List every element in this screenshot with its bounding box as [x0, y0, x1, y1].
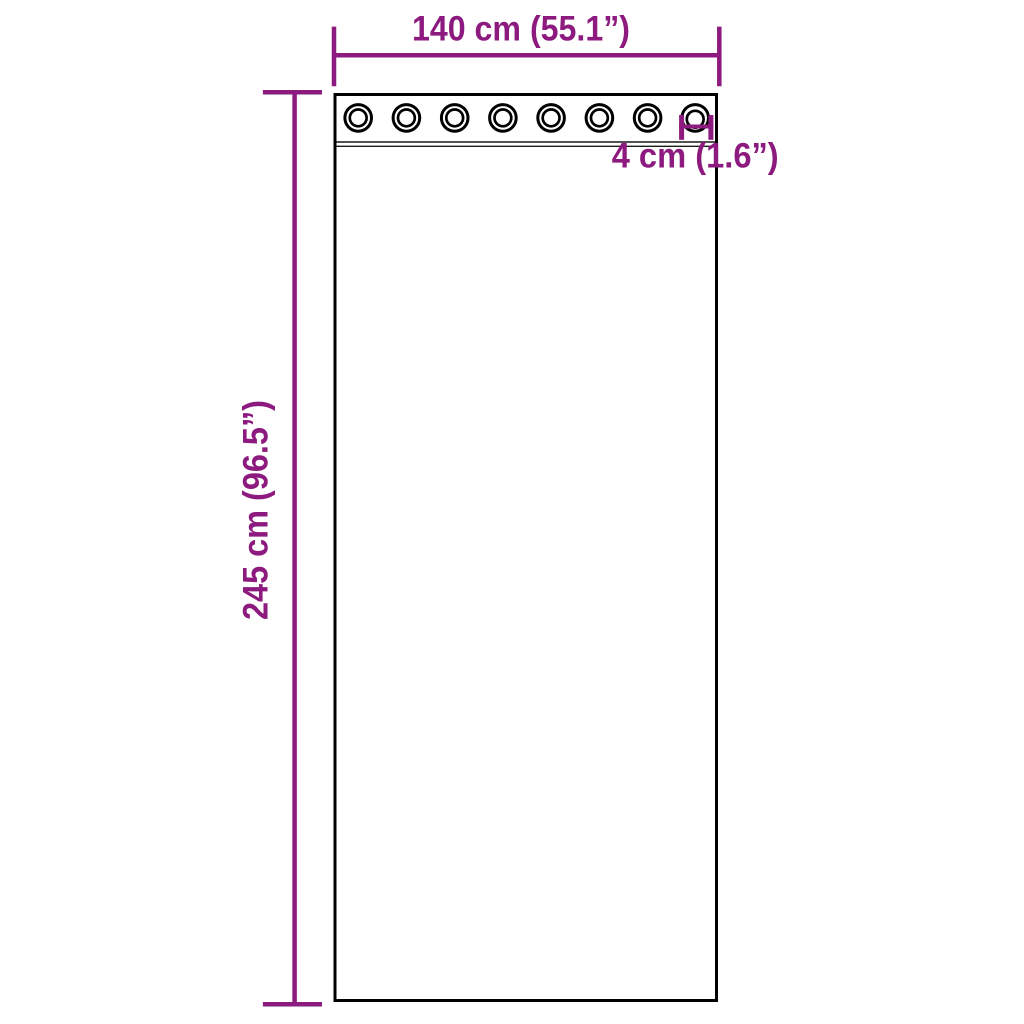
svg-text:140 cm (55.1”): 140 cm (55.1”)	[412, 10, 630, 49]
svg-text:4 cm (1.6”): 4 cm (1.6”)	[612, 137, 779, 176]
svg-text:245 cm (96.5”): 245 cm (96.5”)	[237, 400, 276, 620]
